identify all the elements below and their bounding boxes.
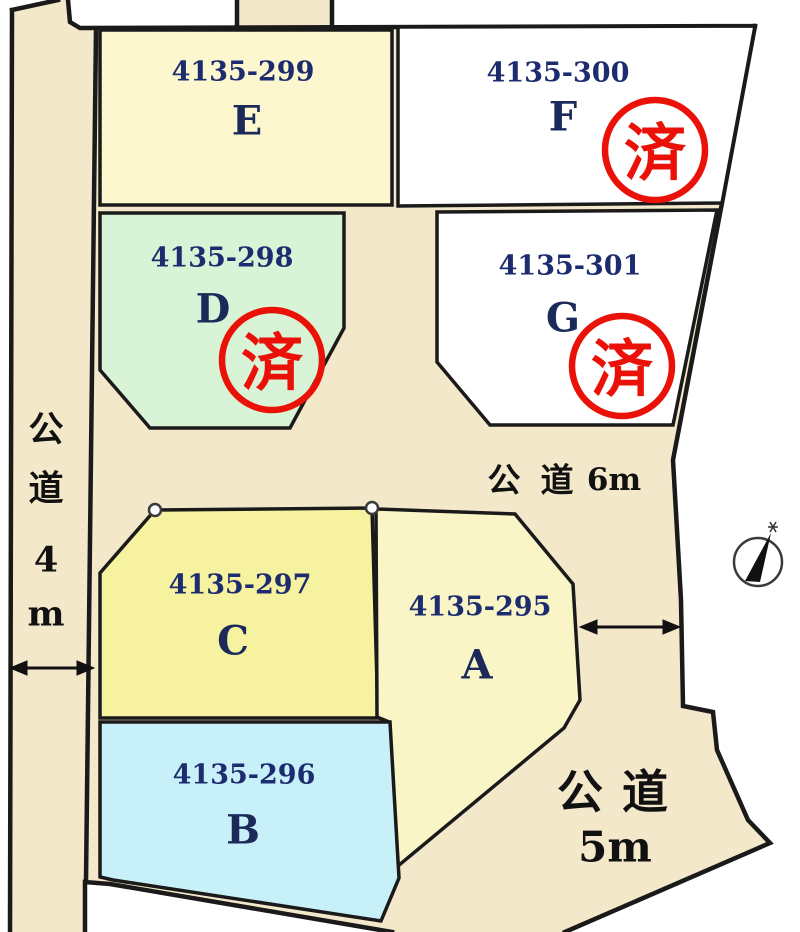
- road-center-char-2: 道: [541, 461, 574, 500]
- north-star-icon: [768, 522, 778, 532]
- plot-D-parcel-number: 4135-298: [151, 243, 294, 274]
- plot-B-letter: B: [226, 807, 260, 854]
- plot-F-letter: F: [549, 94, 577, 141]
- plot-D-letter: D: [196, 286, 231, 333]
- sold-stamp-F-text: 済: [624, 117, 687, 190]
- sold-stamp-G-text: 済: [591, 333, 654, 406]
- road-south-char-1: 公: [557, 765, 603, 819]
- lot-map: 4135-299 E 4135-300 F 4135-298 D 4135-30…: [0, 0, 800, 932]
- plot-F-parcel-number: 4135-300: [487, 58, 630, 89]
- plot-G-letter: G: [546, 295, 580, 342]
- plot-A-letter: A: [460, 642, 493, 689]
- compass-icon: [734, 522, 782, 586]
- road-west-char-3: 4: [34, 540, 58, 581]
- plot-C-letter: C: [217, 618, 249, 665]
- plot-G-parcel-number: 4135-301: [499, 251, 642, 282]
- plot-B-parcel-number: 4135-296: [173, 760, 316, 791]
- road-south-width: 5m: [578, 823, 652, 872]
- vertex-marker-icon: [366, 502, 378, 514]
- plot-F: 4135-300 F: [398, 26, 755, 206]
- road-center-width: 6m: [587, 462, 642, 498]
- plot-C: 4135-297 C: [100, 508, 378, 718]
- plot-A-parcel-number: 4135-295: [409, 592, 552, 623]
- plot-E-parcel-number: 4135-299: [172, 57, 315, 88]
- plot-C-area: [100, 508, 378, 718]
- road-west-char-2: 道: [28, 469, 63, 510]
- road-west-char-4: m: [27, 594, 64, 635]
- road-label-center: 公 道 6m: [488, 461, 642, 500]
- vertex-marker-icon: [149, 504, 161, 516]
- plot-E-letter: E: [232, 98, 263, 145]
- road-south-char-2: 道: [622, 765, 668, 819]
- lot-map-canvas: 4135-299 E 4135-300 F 4135-298 D 4135-30…: [0, 0, 800, 932]
- road-center-char-1: 公: [488, 461, 521, 500]
- plot-C-parcel-number: 4135-297: [169, 570, 312, 601]
- plot-E: 4135-299 E: [100, 30, 392, 205]
- sold-stamp-D-text: 済: [241, 327, 304, 400]
- road-west-char-1: 公: [28, 410, 63, 451]
